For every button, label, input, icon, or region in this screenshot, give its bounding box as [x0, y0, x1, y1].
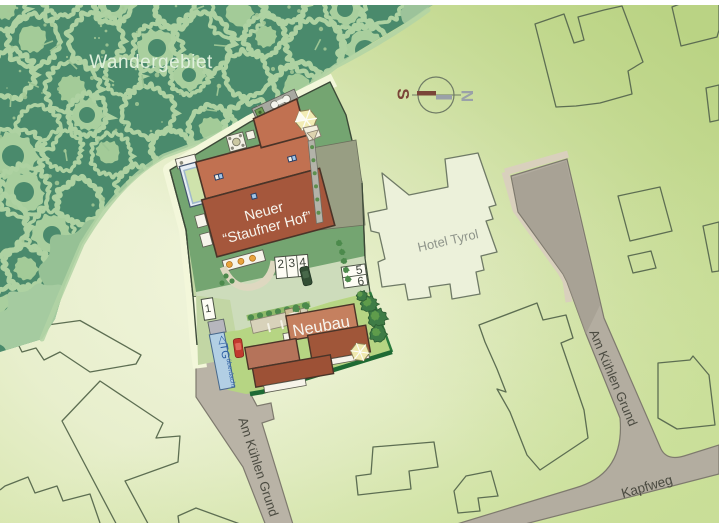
svg-text:N: N — [458, 90, 477, 102]
svg-text:Wandergebiet: Wandergebiet — [89, 52, 213, 73]
svg-text:S: S — [394, 88, 413, 99]
